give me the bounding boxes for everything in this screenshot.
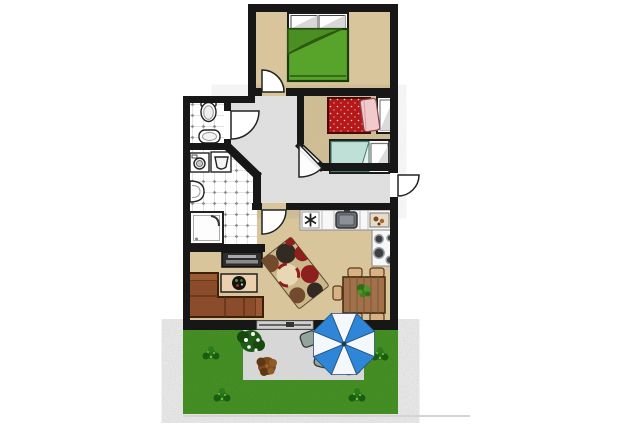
wc-basin-icon — [199, 130, 220, 143]
coffee-table — [221, 274, 257, 292]
ground-shadow-line — [183, 415, 470, 417]
parasol-icon — [314, 314, 375, 375]
floor-plan-image — [0, 0, 640, 427]
floor-plan-svg — [0, 0, 640, 427]
double-bed-green — [288, 13, 348, 81]
laundry-basin-icon — [211, 152, 231, 172]
doorway-living — [262, 203, 286, 210]
tv-stand — [222, 252, 262, 267]
wall-bedroom-divider-left — [248, 88, 262, 96]
doorway-entrance — [390, 173, 398, 197]
wall-wc-right-upper — [224, 96, 231, 111]
doorway-wc — [224, 111, 231, 139]
wall-bathroom-bottom — [183, 244, 265, 252]
shower-icon — [190, 212, 223, 244]
door-entrance — [398, 175, 419, 196]
dining-table — [343, 277, 385, 313]
wall-bedroom1-top — [248, 4, 398, 12]
wall-bedroom-divider-right — [286, 88, 398, 96]
wall-right-lower — [390, 197, 398, 330]
wall-block-top — [183, 96, 255, 103]
wall-wc-bottom — [183, 143, 231, 150]
wall-outer-left — [183, 96, 190, 330]
sliding-terrace-door — [257, 321, 313, 329]
wall-bedroom2-bottom — [322, 163, 398, 171]
hob-symbol-icon — [302, 212, 319, 228]
wall-living-top-stub — [252, 203, 262, 210]
washing-machine-icon — [190, 153, 209, 172]
cutting-board — [370, 213, 389, 227]
double-bed-red — [328, 97, 396, 133]
wall-sink-icon — [190, 181, 204, 202]
wall-bedroom2-left — [297, 96, 304, 144]
wall-living-top — [286, 203, 398, 210]
wall-bedroom1-left — [248, 4, 256, 96]
